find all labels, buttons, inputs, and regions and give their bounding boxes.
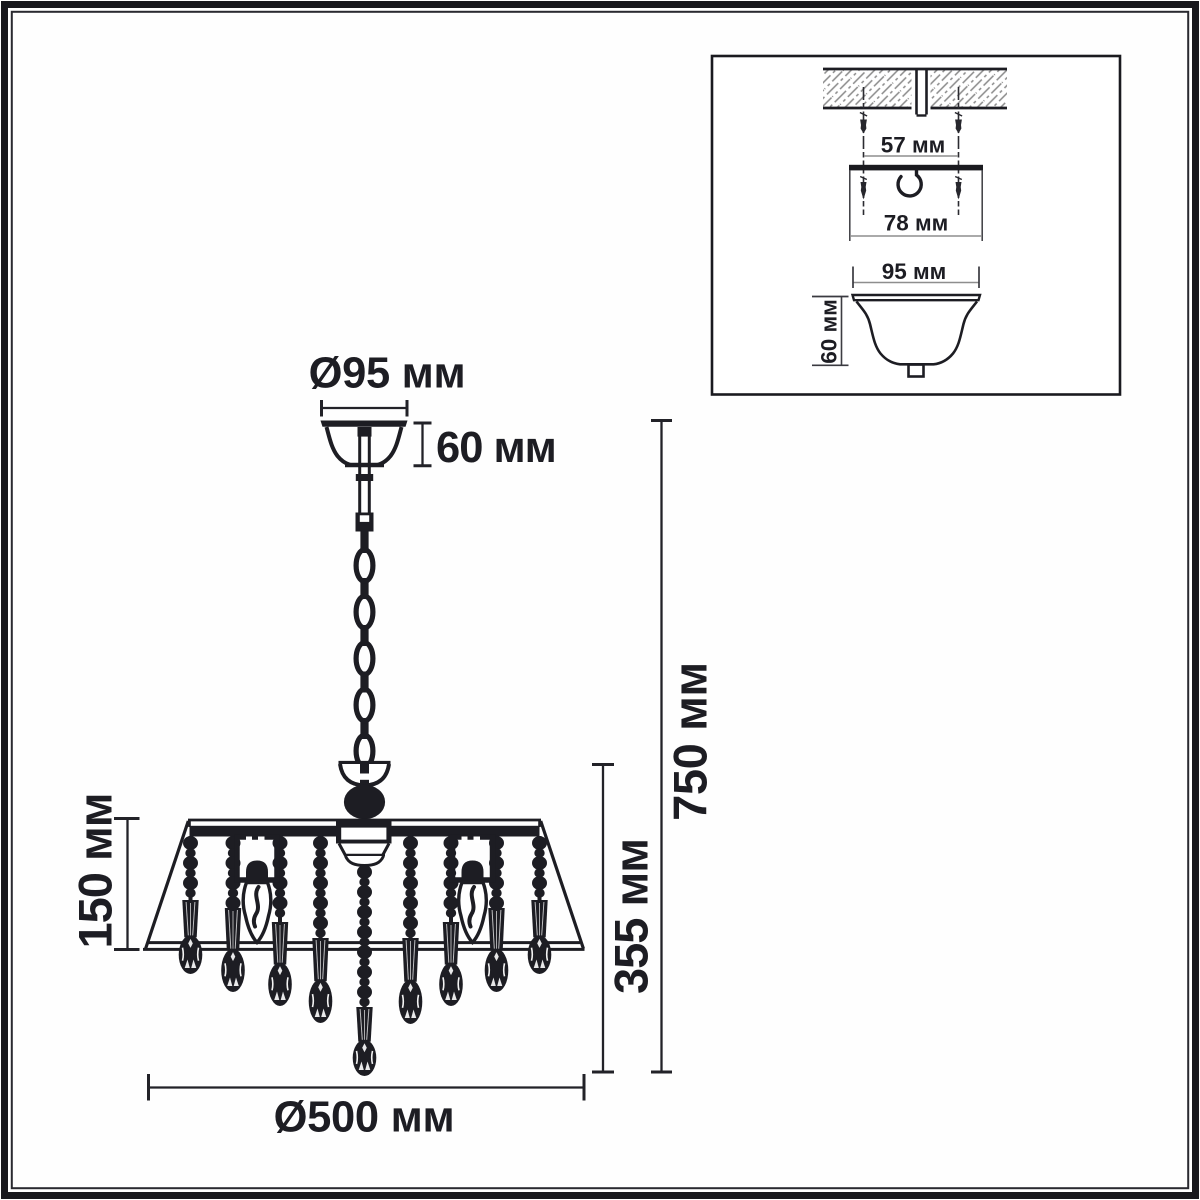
svg-text:57 мм: 57 мм — [881, 133, 946, 158]
svg-text:150 мм: 150 мм — [69, 793, 122, 948]
svg-text:60 мм: 60 мм — [436, 424, 556, 472]
svg-text:60 мм: 60 мм — [817, 299, 842, 364]
svg-text:78 мм: 78 мм — [884, 211, 949, 236]
svg-text:Ø95 мм: Ø95 мм — [309, 350, 466, 398]
svg-text:Ø500 мм: Ø500 мм — [274, 1094, 455, 1142]
svg-text:750 мм: 750 мм — [664, 662, 717, 821]
svg-text:95 мм: 95 мм — [882, 259, 947, 284]
svg-text:355 мм: 355 мм — [605, 839, 658, 994]
